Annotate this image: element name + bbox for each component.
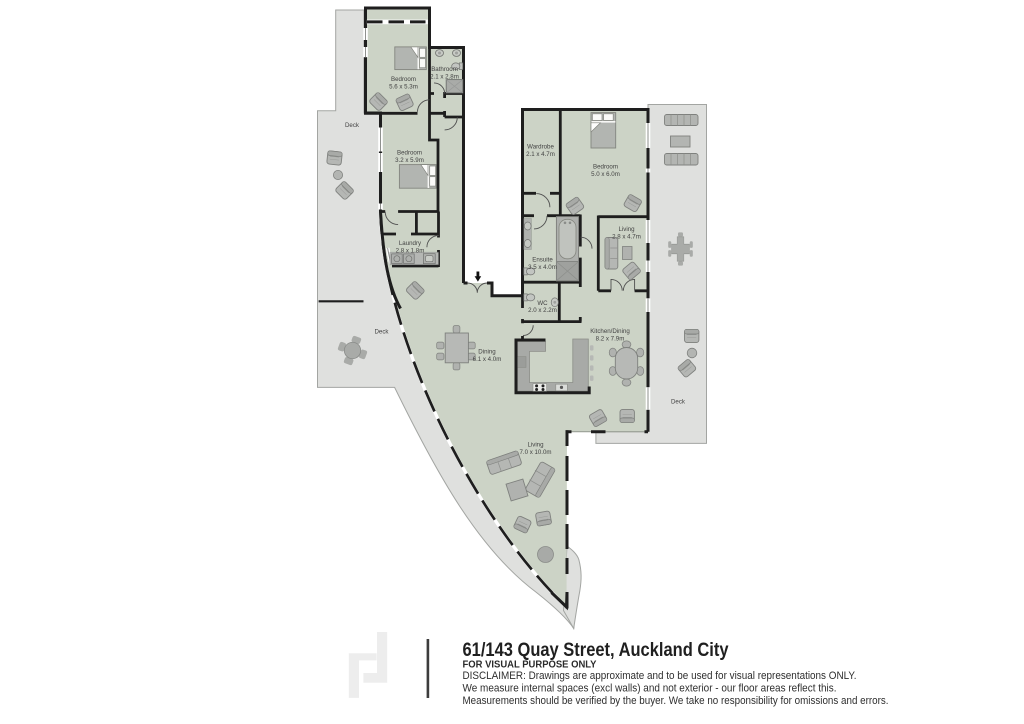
svg-text:2.1 x 4.7m: 2.1 x 4.7m	[526, 151, 555, 158]
svg-text:We measure internal spaces (ex: We measure internal spaces (excl walls) …	[463, 683, 837, 695]
svg-text:2.1 x 2.8m: 2.1 x 2.8m	[430, 74, 459, 81]
svg-text:Bathroom: Bathroom	[431, 66, 458, 73]
svg-text:7.0 x 10.0m: 7.0 x 10.0m	[519, 449, 551, 456]
svg-text:Deck: Deck	[671, 399, 686, 406]
svg-text:5.6 x 5.3m: 5.6 x 5.3m	[389, 84, 418, 91]
svg-text:Living: Living	[527, 442, 544, 449]
svg-text:5.0 x 6.0m: 5.0 x 6.0m	[591, 171, 620, 178]
svg-text:WC: WC	[537, 300, 548, 307]
svg-text:DISCLAIMER: Drawings are appr: DISCLAIMER: Drawings are approximate and…	[463, 670, 857, 682]
svg-text:Living: Living	[618, 226, 635, 233]
svg-text:Measurements should be verifie: Measurements should be verified by the b…	[463, 695, 889, 707]
svg-text:61/143 Quay Street, Auckland C: 61/143 Quay Street, Auckland City	[463, 640, 729, 661]
svg-text:Bedroom: Bedroom	[397, 150, 422, 157]
svg-text:2.0 x 2.2m: 2.0 x 2.2m	[528, 307, 557, 314]
svg-text:3.5 x 4.0m: 3.5 x 4.0m	[528, 264, 557, 271]
svg-text:Bedroom: Bedroom	[593, 164, 618, 171]
svg-text:8.2 x 7.9m: 8.2 x 7.9m	[596, 336, 625, 343]
svg-text:Deck: Deck	[345, 122, 360, 129]
svg-text:Wardrobe: Wardrobe	[527, 144, 554, 151]
svg-text:2.8 x 4.7m: 2.8 x 4.7m	[612, 234, 641, 241]
svg-text:Bedroom: Bedroom	[391, 76, 416, 83]
svg-text:3.2 x 5.9m: 3.2 x 5.9m	[395, 157, 424, 164]
svg-text:6.1 x 4.0m: 6.1 x 4.0m	[473, 356, 502, 363]
svg-text:Kitchen/Dining: Kitchen/Dining	[590, 328, 630, 335]
svg-text:Dining: Dining	[478, 349, 496, 356]
svg-text:Ensuite: Ensuite	[532, 257, 553, 264]
svg-text:2.8 x 1.8m: 2.8 x 1.8m	[396, 248, 425, 255]
svg-text:Deck: Deck	[375, 329, 390, 336]
svg-text:Laundry: Laundry	[399, 240, 422, 247]
